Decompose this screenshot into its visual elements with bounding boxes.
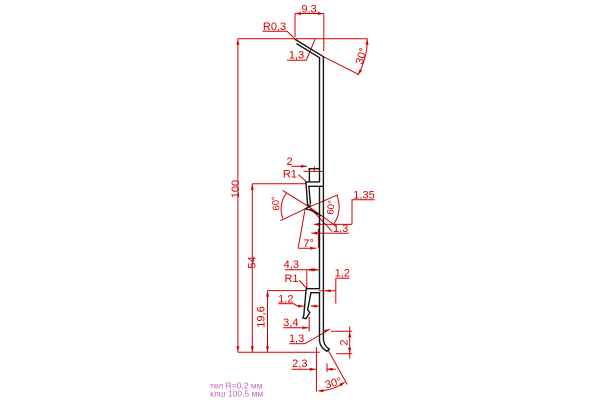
svg-text:100: 100	[230, 180, 242, 198]
svg-text:4,3: 4,3	[284, 259, 299, 271]
svg-text:19,6: 19,6	[256, 306, 268, 327]
svg-text:2,3: 2,3	[292, 358, 307, 370]
svg-text:R1: R1	[284, 273, 298, 285]
svg-text:клш 100,5 мм: клш 100,5 мм	[210, 389, 263, 399]
svg-text:1,3: 1,3	[289, 50, 304, 62]
svg-text:9,3: 9,3	[301, 4, 316, 16]
svg-text:54: 54	[246, 256, 258, 268]
svg-text:1,3: 1,3	[333, 223, 348, 235]
svg-text:R1: R1	[283, 168, 297, 180]
svg-text:60°: 60°	[325, 200, 337, 216]
svg-text:60°: 60°	[270, 195, 283, 211]
svg-text:7°: 7°	[303, 238, 314, 250]
svg-text:1,2: 1,2	[278, 294, 293, 306]
svg-text:30°: 30°	[354, 47, 370, 66]
svg-text:30°: 30°	[324, 376, 343, 392]
svg-text:1,35: 1,35	[353, 189, 374, 201]
svg-text:R0,3: R0,3	[263, 21, 286, 33]
svg-text:2: 2	[339, 340, 351, 346]
svg-text:2: 2	[286, 156, 292, 168]
svg-text:3,4: 3,4	[283, 317, 298, 329]
svg-text:1,2: 1,2	[335, 267, 350, 279]
svg-text:1,3: 1,3	[289, 333, 304, 345]
